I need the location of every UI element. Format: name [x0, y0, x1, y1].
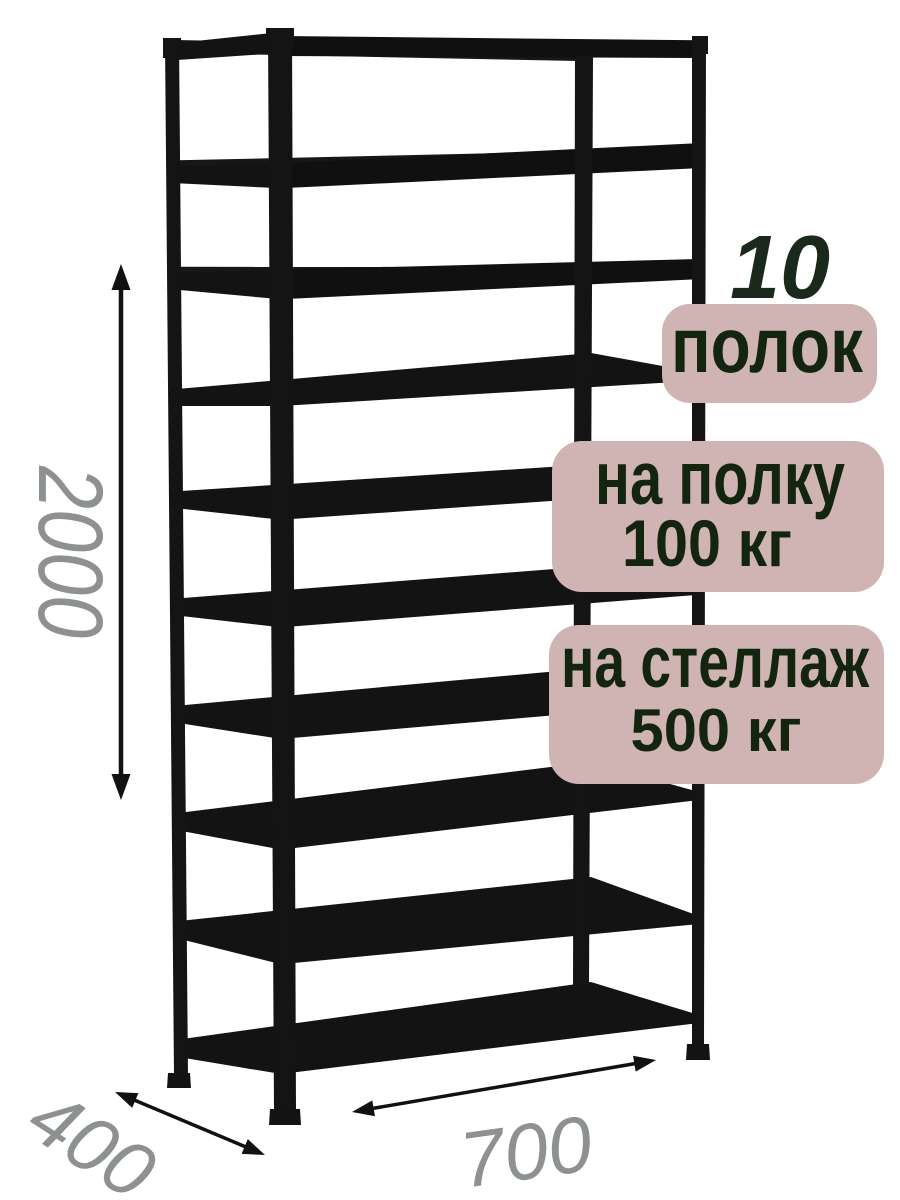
svg-text:400: 400: [13, 1072, 170, 1200]
svg-text:500 кг: 500 кг: [631, 697, 802, 764]
svg-text:700: 700: [454, 1098, 597, 1200]
svg-text:2000: 2000: [19, 465, 121, 638]
svg-text:на стеллаж: на стеллаж: [561, 623, 870, 703]
svg-text:100 кг: 100 кг: [622, 506, 792, 580]
svg-text:полок: полок: [671, 301, 864, 389]
